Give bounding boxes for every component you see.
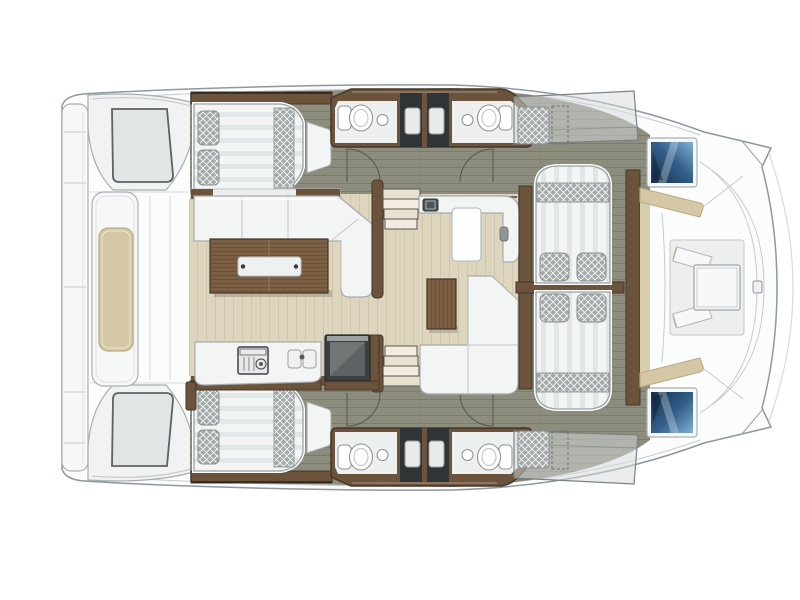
- salon-cabinet: [427, 279, 456, 329]
- table-inset-tray: [238, 257, 301, 276]
- sink-bowl: [288, 350, 301, 368]
- refrigerator-front-panel: [452, 208, 481, 261]
- galley-end-wall: [186, 382, 196, 410]
- cup-holder: [241, 264, 245, 268]
- window-port: [647, 138, 697, 187]
- counter-faucet: [500, 227, 508, 241]
- stairs-starboard: [383, 346, 420, 386]
- heads-starboard: [331, 428, 532, 486]
- window-starboard: [647, 388, 697, 437]
- floor-plan-page: [0, 0, 800, 600]
- bow-cleat: [753, 281, 762, 293]
- forward-berth-port: [536, 166, 610, 283]
- forward-berth-starboard: [536, 292, 610, 409]
- cockpit-table: [694, 265, 740, 310]
- stairs-port: [383, 189, 420, 229]
- sofa-side-wall: [372, 180, 383, 298]
- appliance-bottom-trim: [325, 381, 379, 390]
- cup-holder: [294, 264, 298, 268]
- berth-wall-aft-bottom: [519, 291, 532, 389]
- bench-cushion: [99, 228, 133, 351]
- heads-port: [331, 89, 532, 147]
- bulkhead-beige-strip: [640, 195, 650, 380]
- galley-faucet: [300, 355, 305, 360]
- roof-panel-starboard: [514, 431, 638, 484]
- bow-bulkhead: [626, 170, 640, 405]
- berth-wall-aft-top: [519, 186, 532, 284]
- roof-panel-port: [514, 91, 638, 144]
- catamaran-floor-plan: [0, 0, 800, 600]
- sink-bowl: [303, 350, 316, 368]
- cooktop: [238, 347, 268, 374]
